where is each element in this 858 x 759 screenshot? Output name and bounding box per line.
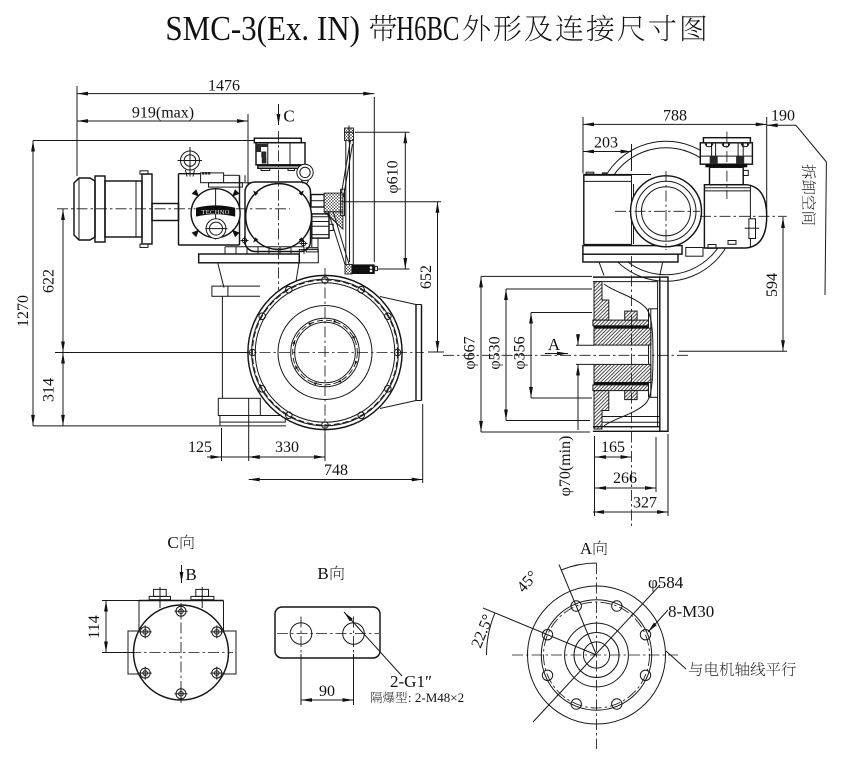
svg-text:594: 594 bbox=[764, 273, 781, 297]
svg-text:330: 330 bbox=[275, 439, 299, 456]
svg-text:φ530: φ530 bbox=[487, 336, 504, 369]
svg-text:TECHNO: TECHNO bbox=[201, 209, 229, 216]
svg-text:A: A bbox=[580, 539, 593, 558]
svg-text:90: 90 bbox=[319, 683, 335, 700]
svg-text:B: B bbox=[317, 564, 328, 583]
svg-text:1270: 1270 bbox=[15, 295, 32, 327]
svg-text:φ584: φ584 bbox=[648, 573, 684, 592]
svg-text:H6BC: H6BC bbox=[396, 9, 459, 48]
svg-text:190: 190 bbox=[771, 108, 795, 125]
svg-text:1476: 1476 bbox=[208, 78, 240, 95]
svg-text:788: 788 bbox=[663, 108, 687, 125]
svg-text:327: 327 bbox=[633, 495, 657, 512]
svg-text:A: A bbox=[548, 335, 561, 354]
svg-text:314: 314 bbox=[41, 378, 58, 402]
svg-text:748: 748 bbox=[324, 462, 348, 479]
svg-text:: 2-M48×2: : 2-M48×2 bbox=[408, 690, 464, 705]
svg-text:φ70(min): φ70(min) bbox=[557, 436, 574, 497]
svg-text:SMC-3(Ex. IN): SMC-3(Ex. IN) bbox=[165, 10, 360, 48]
svg-text:C: C bbox=[167, 533, 178, 552]
svg-text:203: 203 bbox=[594, 135, 618, 152]
svg-text:919(max): 919(max) bbox=[132, 105, 194, 122]
svg-text:B: B bbox=[185, 565, 196, 584]
svg-text:622: 622 bbox=[41, 269, 58, 293]
svg-text:652: 652 bbox=[418, 265, 435, 289]
svg-text:2-G1″: 2-G1″ bbox=[390, 672, 432, 691]
svg-text:125: 125 bbox=[188, 439, 212, 456]
svg-text:8-M30: 8-M30 bbox=[668, 602, 714, 621]
svg-text:266: 266 bbox=[613, 470, 637, 487]
svg-text:φ356: φ356 bbox=[512, 336, 529, 369]
svg-text:114: 114 bbox=[86, 615, 103, 638]
svg-text:165: 165 bbox=[601, 439, 625, 456]
svg-text:φ610: φ610 bbox=[385, 160, 402, 193]
svg-text:φ667: φ667 bbox=[462, 336, 479, 369]
svg-text:C: C bbox=[283, 107, 294, 126]
